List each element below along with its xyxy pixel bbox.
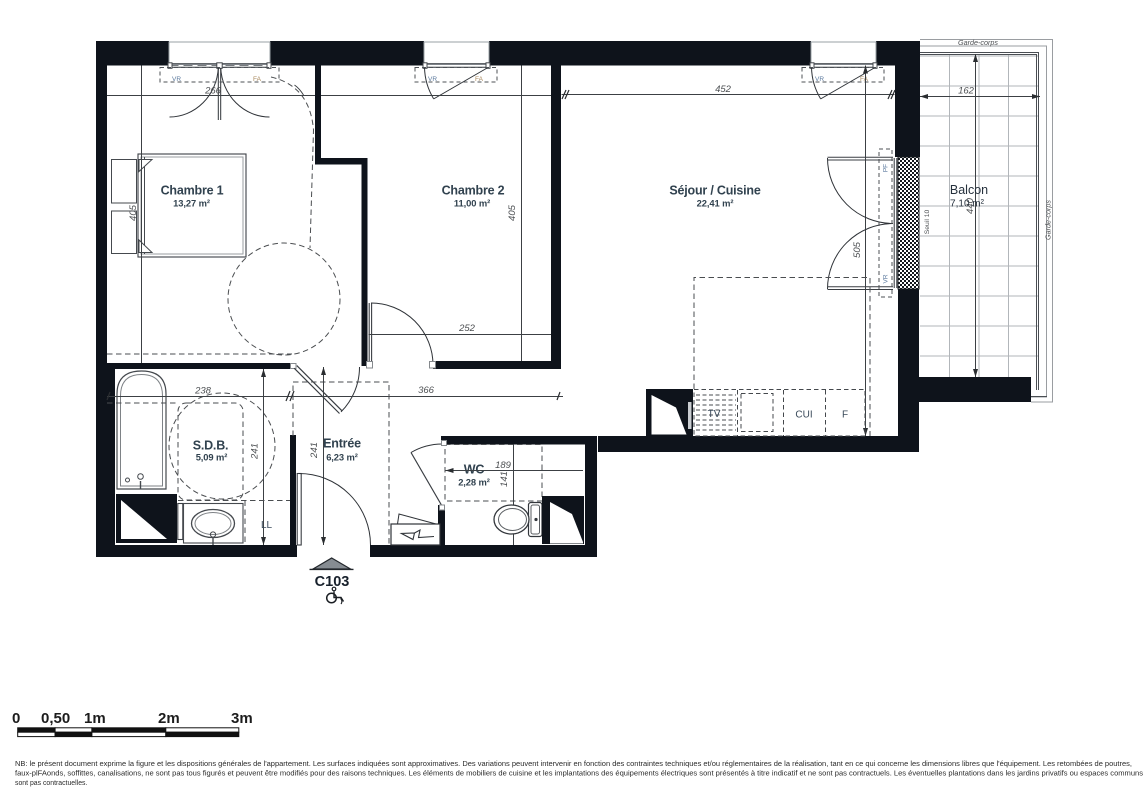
svg-text:452: 452 [715, 84, 732, 95]
svg-text:366: 366 [418, 385, 435, 396]
svg-text:11,00 m²: 11,00 m² [454, 198, 490, 209]
svg-text:CUI: CUI [795, 410, 812, 421]
svg-text:Chambre 1: Chambre 1 [161, 184, 224, 198]
svg-text:VR: VR [172, 76, 181, 83]
svg-text:WC: WC [464, 463, 485, 477]
svg-text:252: 252 [458, 323, 476, 334]
svg-text:sont pas contractuelles.: sont pas contractuelles. [15, 780, 87, 787]
svg-text:241: 241 [309, 442, 320, 459]
svg-text:505: 505 [852, 241, 863, 258]
svg-text:0: 0 [12, 710, 20, 727]
svg-text:238: 238 [194, 386, 212, 397]
svg-text:162: 162 [958, 86, 975, 97]
svg-text:Garde-corps: Garde-corps [958, 38, 998, 47]
svg-text:NB: le présent document exprim: NB: le présent document exprime la figur… [15, 761, 1132, 768]
svg-text:3m: 3m [231, 710, 253, 727]
svg-text:405: 405 [507, 204, 518, 221]
svg-text:faux-plFAonds, soffittes, cana: faux-plFAonds, soffittes, canalisations,… [15, 771, 1144, 778]
svg-text:Séjour / Cuisine: Séjour / Cuisine [669, 184, 761, 198]
svg-text:VR: VR [428, 76, 437, 83]
svg-text:6,23 m²: 6,23 m² [326, 452, 358, 463]
svg-text:405: 405 [128, 204, 139, 221]
svg-text:141: 141 [499, 471, 510, 487]
svg-text:S.D.B.: S.D.B. [193, 439, 229, 453]
svg-text:VR: VR [815, 76, 824, 83]
svg-text:Entrée: Entrée [323, 437, 361, 451]
svg-text:Garde-corps: Garde-corps [1044, 200, 1053, 240]
svg-text:Chambre 2: Chambre 2 [442, 184, 505, 198]
svg-text:189: 189 [495, 460, 512, 471]
svg-text:22,41 m²: 22,41 m² [697, 198, 734, 209]
svg-text:7,10 m²: 7,10 m² [950, 199, 985, 210]
svg-text:FA: FA [475, 76, 484, 83]
svg-text:Seuil 10: Seuil 10 [924, 209, 931, 234]
svg-text:13,27 m²: 13,27 m² [173, 198, 210, 209]
svg-text:0,50: 0,50 [41, 710, 70, 727]
svg-text:FA: FA [253, 76, 262, 83]
svg-text:LL: LL [261, 520, 273, 531]
svg-text:241: 241 [250, 443, 261, 460]
svg-text:5,09 m²: 5,09 m² [196, 452, 228, 463]
svg-text:PF: PF [883, 164, 890, 172]
svg-text:TV: TV [708, 409, 721, 420]
svg-text:VR: VR [883, 274, 890, 283]
svg-text:F: F [842, 410, 848, 421]
svg-text:2m: 2m [158, 710, 180, 727]
svg-text:2,28 m²: 2,28 m² [458, 477, 490, 488]
svg-text:C103: C103 [315, 574, 350, 590]
svg-text:Balcon: Balcon [950, 183, 988, 197]
svg-text:266: 266 [204, 86, 222, 97]
svg-text:FA: FA [860, 76, 869, 83]
svg-text:1m: 1m [84, 710, 106, 727]
